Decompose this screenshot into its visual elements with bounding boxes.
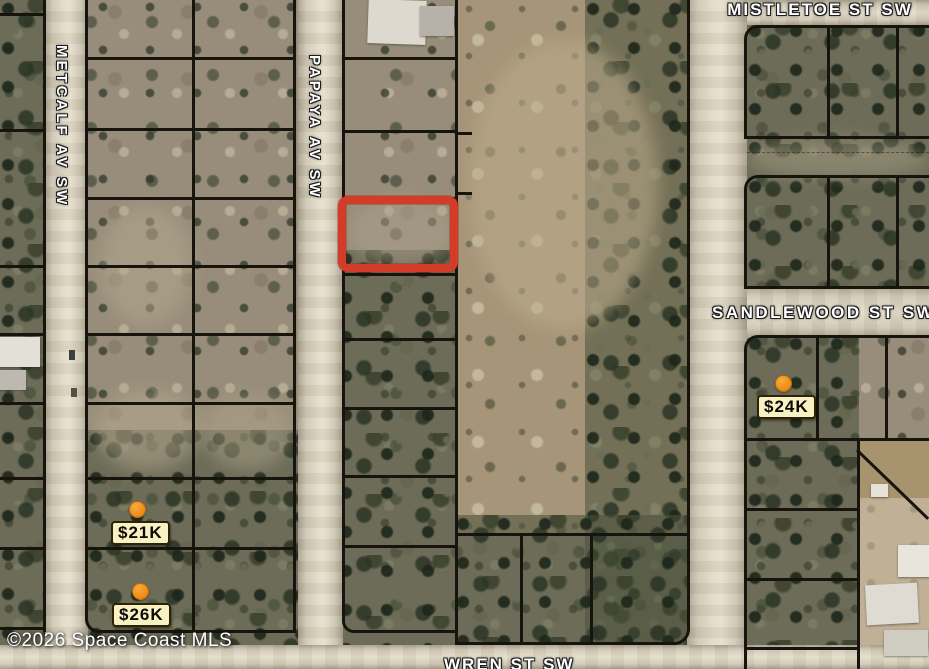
parcel-line (86, 547, 295, 550)
parcel-line (0, 333, 44, 336)
listing-dot-icon (132, 583, 149, 600)
parcel-line (343, 407, 457, 410)
parcel-line (86, 477, 295, 480)
parcel-line (590, 533, 593, 642)
building-roof (367, 0, 427, 45)
parcel-line (0, 547, 44, 550)
building-roof (898, 545, 929, 577)
parcel-line (0, 129, 44, 132)
parcel-line (745, 578, 859, 581)
listing-dot-icon (129, 501, 146, 518)
parcel-line (896, 25, 899, 136)
parcel-line (86, 197, 295, 200)
parcel-line (343, 273, 457, 276)
building-roof (420, 6, 454, 36)
parcel-line (43, 0, 46, 632)
street-label-wren: WREN ST SW (444, 655, 575, 669)
building-roof (871, 484, 888, 497)
price-label: $21K (111, 521, 170, 545)
parcel-line (827, 178, 830, 286)
terrain-clearing (468, 40, 658, 330)
vehicle (69, 350, 75, 360)
street-label-papaya: PAPAYA AV SW (306, 55, 323, 200)
listing-dot-icon (775, 375, 792, 392)
street-label-mistletoe: MISTLETOE ST SW (712, 0, 928, 20)
parcel-line (86, 333, 295, 336)
terrain-clearing (203, 395, 291, 470)
parcel-line (343, 338, 457, 341)
copyright-watermark: ©2026 Space Coast MLS (7, 630, 232, 652)
vehicle (71, 388, 77, 397)
price-label: $24K (757, 395, 816, 419)
street-label-metcalf: METCALF AV SW (53, 45, 70, 207)
parcel-line (885, 338, 888, 438)
parcel-line (745, 647, 859, 650)
parcel-line (455, 132, 472, 135)
parcel-line (86, 265, 295, 268)
road-right-avenue (687, 0, 747, 669)
parcel-line (86, 402, 295, 405)
terrain-vegetation (338, 250, 458, 645)
parcel-line (343, 475, 457, 478)
parcel-line (86, 128, 295, 131)
parcel-line (520, 533, 523, 642)
parcel-line (745, 508, 859, 511)
parcel-line (827, 25, 830, 136)
parcel-line (343, 57, 457, 60)
parcel-line (0, 477, 44, 480)
building-roof (884, 630, 928, 656)
parcel-line (455, 533, 690, 536)
price-label: $26K (112, 603, 171, 627)
parcel-line (343, 545, 457, 548)
highlighted-parcel[interactable] (338, 196, 458, 272)
price-marker-21k[interactable]: $21K (111, 501, 201, 546)
parcel-line (86, 57, 295, 60)
parcel-line (0, 265, 44, 268)
building-roof (865, 583, 919, 626)
parcel-line (455, 192, 472, 195)
map-canvas[interactable]: METCALF AV SW PAPAYA AV SW MISTLETOE ST … (0, 0, 929, 669)
building-roof (0, 370, 26, 390)
price-marker-24k[interactable]: $24K (757, 375, 847, 420)
price-marker-26k[interactable]: $26K (112, 583, 202, 628)
terrain-easement-strip (747, 138, 929, 178)
parcel-line (0, 13, 44, 16)
parcel-line (0, 402, 44, 405)
parcel-line (343, 130, 457, 133)
street-label-sandlewood: SANDLEWOOD ST SW (712, 303, 928, 323)
easement-line (747, 152, 929, 153)
building-roof (0, 337, 40, 367)
parcel-line (896, 178, 899, 286)
